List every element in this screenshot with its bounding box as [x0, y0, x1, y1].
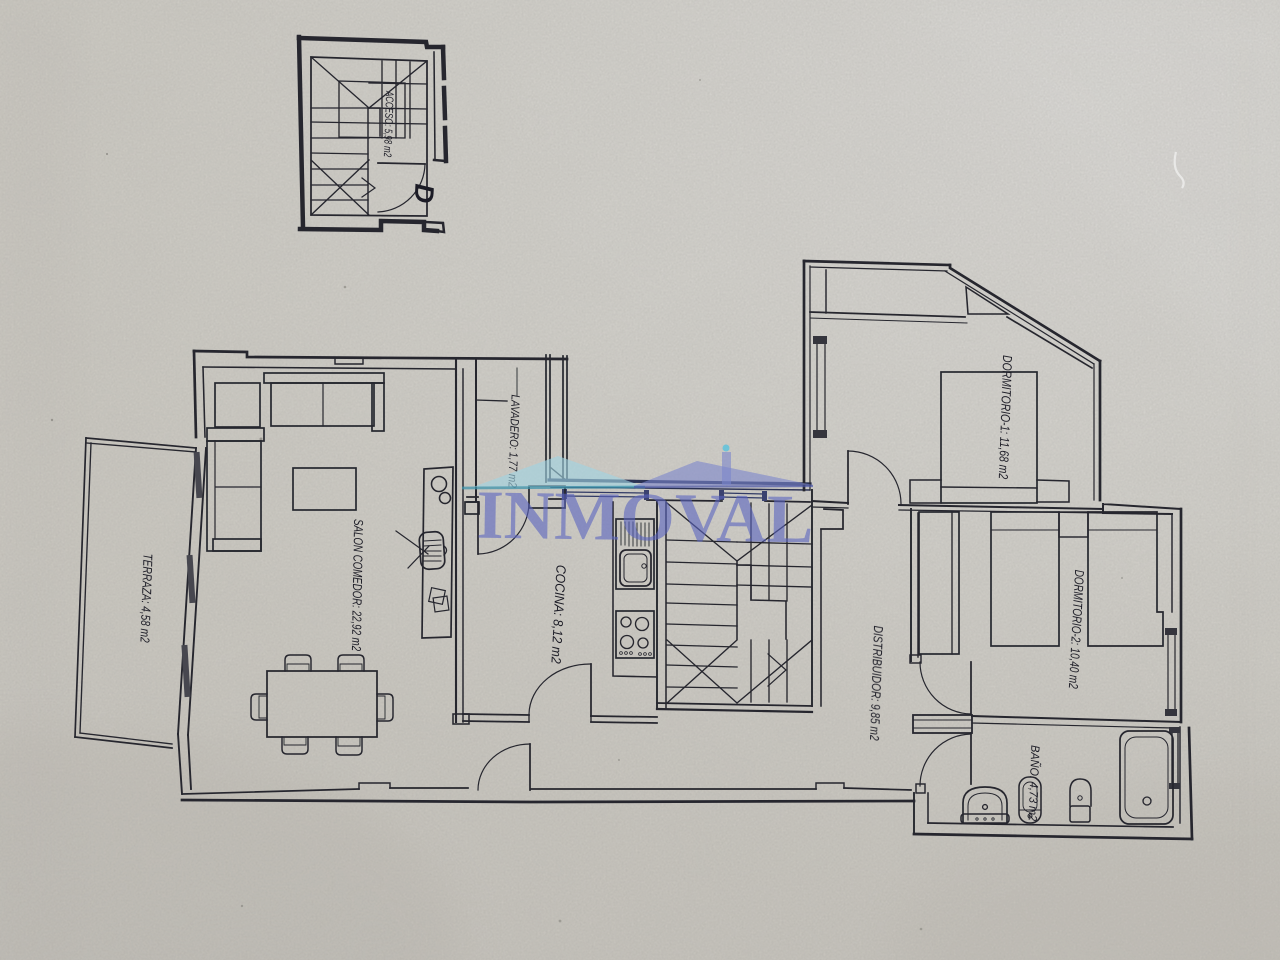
svg-text:TERRAZA: 4,58 m2: TERRAZA: 4,58 m2 — [137, 553, 155, 643]
svg-text:INMOVAL: INMOVAL — [476, 477, 814, 558]
svg-text:ACCESO: 5,98 m2: ACCESO: 5,98 m2 — [381, 90, 395, 157]
svg-text:D: D — [408, 183, 439, 204]
svg-text:SALON COMEDOR: 22,92 m2: SALON COMEDOR: 22,92 m2 — [349, 519, 366, 652]
svg-text:BAÑO: 4,73 m2: BAÑO: 4,73 m2 — [1026, 745, 1043, 822]
